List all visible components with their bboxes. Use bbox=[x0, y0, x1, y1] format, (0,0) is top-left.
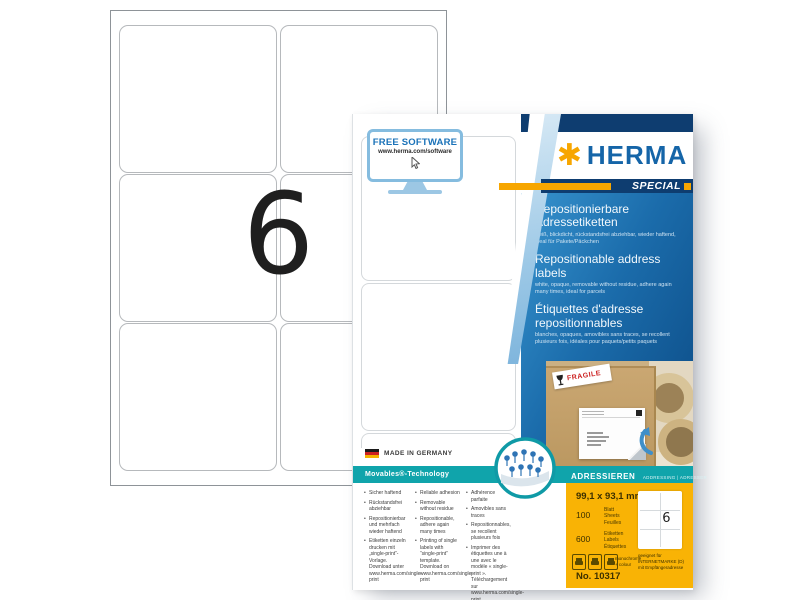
bullets-de: Sicher haftendRückstandsfrei abziehbarRe… bbox=[364, 490, 410, 600]
list-item: Removable without residue bbox=[415, 500, 461, 513]
herma-asterisk-icon: ✱ bbox=[557, 141, 582, 171]
list-item: Sheets bbox=[604, 513, 621, 519]
addressing-label: ADRESSIEREN ADDRESSING | ADRESSER bbox=[571, 466, 707, 486]
peel-arrow-icon bbox=[636, 427, 656, 455]
stamp-mark bbox=[636, 410, 642, 416]
subtitle-de: weiß, blickdicht, rückstandsfrei abziehb… bbox=[535, 232, 685, 246]
printer-compatibility-icons bbox=[572, 554, 618, 570]
addressing-main: ADRESSIEREN bbox=[571, 472, 635, 481]
bullets-en: Reliable adhesionRemovable without resid… bbox=[415, 490, 461, 600]
monitor-stand bbox=[403, 182, 427, 190]
made-in-germany: MADE IN GERMANY bbox=[365, 446, 458, 460]
divider-line bbox=[582, 417, 640, 418]
parcel-photo: FRAGILE bbox=[546, 361, 693, 466]
fragile-text: FRAGILE bbox=[567, 370, 602, 382]
grid-line bbox=[640, 529, 680, 530]
subtitle-en: white, opaque, removable without residue… bbox=[535, 282, 685, 296]
product-box: FREE SOFTWARE www.herma.com/software MAD… bbox=[352, 114, 693, 590]
labels-count: 600 bbox=[576, 534, 590, 544]
label-size: 99,1 x 93,1 mm bbox=[576, 491, 643, 502]
description-text: Repositionierbare Adressetiketten weiß, … bbox=[535, 203, 685, 353]
spec-panel: 99,1 x 93,1 mm 100 BlattSheetsFeuilles 6… bbox=[566, 483, 693, 588]
label-outline bbox=[119, 25, 277, 173]
title-fr: Étiquettes d'adresse repositionnables bbox=[535, 303, 685, 330]
product-description-panel: Repositionierbare Adressetiketten weiß, … bbox=[521, 193, 693, 466]
list-item: Printing of single labels with “single-p… bbox=[415, 538, 461, 584]
made-in-germany-label: MADE IN GERMANY bbox=[384, 450, 452, 457]
grid-line bbox=[660, 493, 661, 547]
list-item: Rückstandsfrei abziehbar bbox=[364, 500, 410, 513]
movables-badge-icon bbox=[493, 436, 557, 500]
list-item: Etiketten einzeln drucken mit „single-pr… bbox=[364, 538, 410, 584]
sender-line bbox=[582, 414, 604, 415]
special-band: SPECIAL bbox=[521, 179, 693, 193]
mini-count-number: 6 bbox=[662, 511, 670, 526]
item-number: No. 10317 bbox=[576, 571, 620, 582]
address-line bbox=[587, 440, 606, 442]
bullets-fr: Adhérence parfaiteAmovibles sans tracesR… bbox=[466, 490, 512, 600]
title-de: Repositionierbare Adressetiketten bbox=[535, 203, 685, 230]
free-software-url: www.herma.com/software bbox=[370, 149, 460, 155]
feature-bullets: Sicher haftendRückstandsfrei abziehbarRe… bbox=[364, 490, 516, 600]
list-item: Repositionierbar und mehrfach wieder haf… bbox=[364, 516, 410, 536]
sheets-count: 100 bbox=[576, 510, 590, 520]
orange-square bbox=[684, 183, 691, 190]
address-line bbox=[587, 444, 601, 446]
special-label: SPECIAL bbox=[632, 179, 681, 193]
orange-stripe bbox=[499, 183, 611, 190]
printed-label-outline bbox=[361, 283, 516, 431]
suitability-note: geeignet für INTERNETMARKE (D) mit Empfä… bbox=[638, 553, 688, 571]
list-item: Amovibles sans traces bbox=[466, 506, 512, 519]
monitor-screen: FREE SOFTWARE www.herma.com/software bbox=[367, 129, 463, 182]
wine-glass-icon bbox=[555, 373, 565, 386]
list-item: Repositionnables, se recollent plusieurs… bbox=[466, 522, 512, 542]
subtitle-fr: blanches, opaques, amovibles sans traces… bbox=[535, 332, 685, 346]
monitor-icon: FREE SOFTWARE www.herma.com/software bbox=[367, 129, 463, 194]
addressing-sub: ADDRESSING | ADRESSER bbox=[643, 475, 707, 480]
free-software-title: FREE SOFTWARE bbox=[370, 137, 460, 148]
monitor-base bbox=[388, 190, 442, 194]
list-item: Sicher haftend bbox=[364, 490, 410, 497]
list-item: Feuilles bbox=[604, 520, 621, 526]
list-item: Reliable adhesion bbox=[415, 490, 461, 497]
label-outline bbox=[119, 323, 277, 471]
address-line bbox=[587, 432, 603, 434]
list-item: Étiquettes bbox=[604, 544, 626, 550]
brand-name: HERMA bbox=[587, 140, 687, 171]
cursor-icon bbox=[411, 157, 420, 169]
labels-units: EtikettenLabelsÉtiquettes bbox=[604, 531, 626, 550]
sheets-units: BlattSheetsFeuilles bbox=[604, 507, 621, 526]
product-image: 6 FREE SOFTWARE www.herma.com/software M bbox=[0, 0, 800, 600]
mini-sheet-diagram: 6 bbox=[638, 491, 682, 549]
printer-icon bbox=[588, 554, 602, 570]
grid-line bbox=[640, 510, 680, 511]
address-line bbox=[587, 436, 609, 438]
movables-technology-label: Movables®-Technology bbox=[365, 466, 449, 483]
sender-line bbox=[582, 411, 604, 412]
list-item: Repositionable, adhere again many times bbox=[415, 516, 461, 536]
list-item: Imprimer des étiquettes une à une avec l… bbox=[466, 545, 512, 600]
printer-icon bbox=[572, 554, 586, 570]
title-en: Repositionable address labels bbox=[535, 253, 685, 280]
german-flag-icon bbox=[365, 449, 379, 458]
